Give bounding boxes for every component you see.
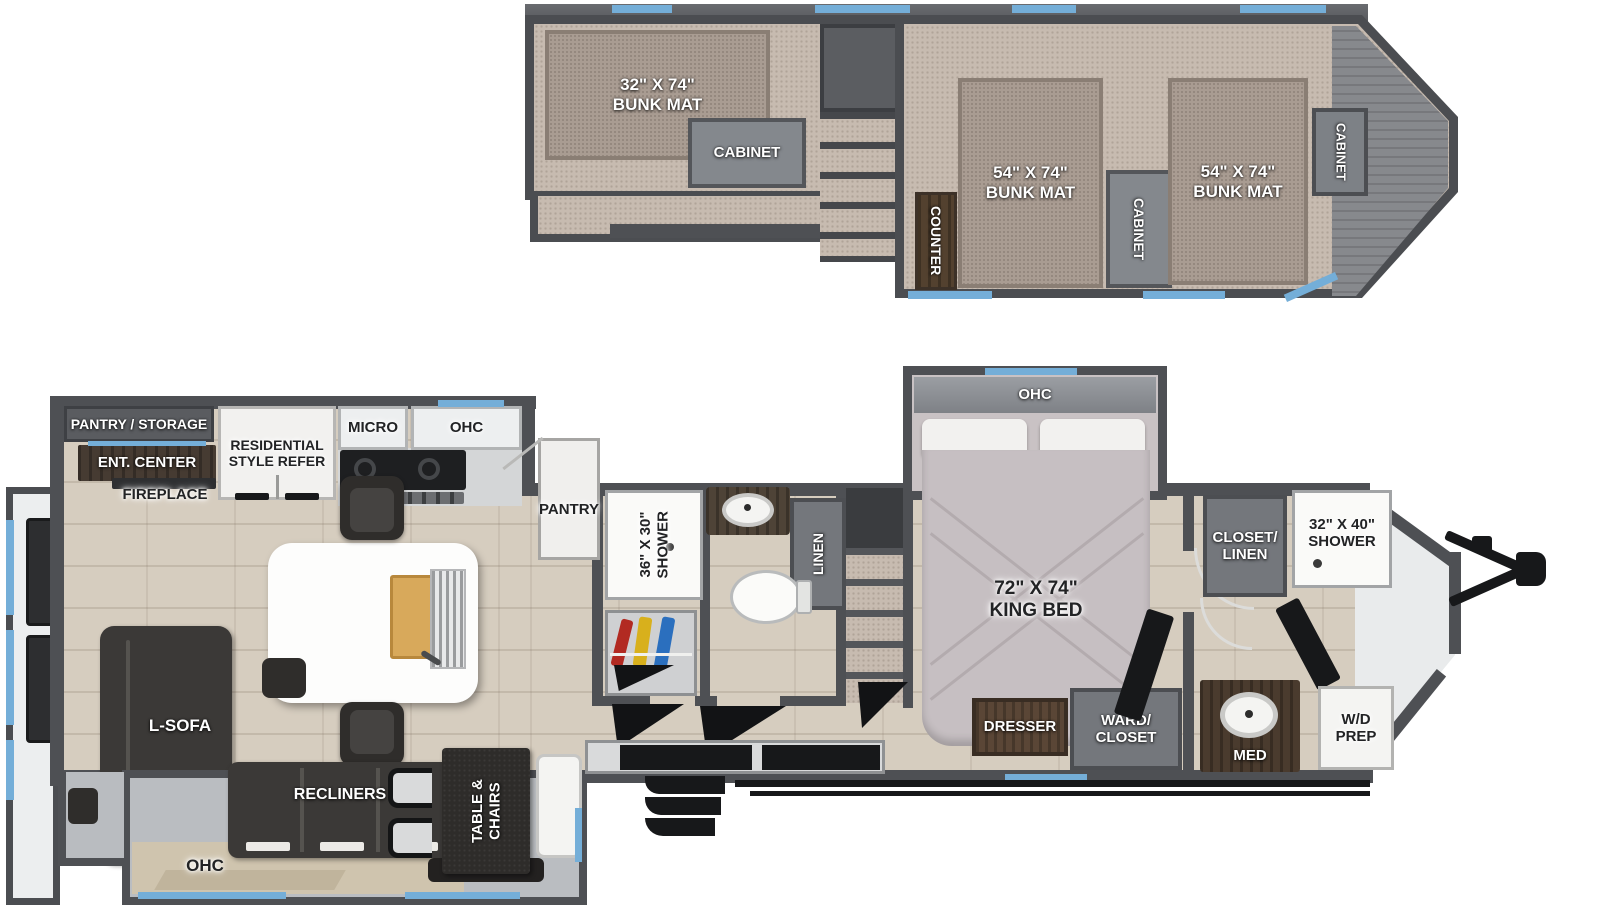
refer-label: RESIDENTIAL STYLE REFER (229, 437, 325, 469)
step (645, 797, 721, 815)
step (645, 818, 715, 836)
window-strip (405, 892, 520, 899)
end-table (68, 788, 98, 824)
upper-floor: 32" X 74" BUNK MAT CABINET COUNTER 54" X… (0, 0, 1600, 310)
stair-tread (820, 232, 908, 262)
toilet-tank (796, 580, 812, 614)
closet-linen: CLOSET/ LINEN (1203, 495, 1287, 597)
window-strip (815, 5, 910, 13)
main-floor: 36" X 30" SHOWER LINEN (0, 330, 1600, 905)
front-shower-label: 32" X 40" SHOWER (1295, 503, 1389, 563)
refer-handle (235, 493, 269, 500)
king-ohc-label: OHC (1018, 386, 1051, 403)
faucet-dot (1245, 710, 1253, 718)
rear-window-strip (6, 740, 14, 800)
loft-counter-label: COUNTER (928, 206, 944, 275)
l-sofa-label-wrap: L-SOFA (130, 706, 230, 746)
window-strip (1012, 5, 1076, 13)
chair-seat (350, 488, 394, 532)
ohc-kitchen-label: OHC (450, 419, 483, 436)
stair-tread (820, 202, 908, 232)
stair-tread (846, 579, 903, 610)
ohc-kitchen: OHC (411, 406, 522, 450)
pantry-storage-label: PANTRY / STORAGE (71, 416, 207, 432)
island-chair (340, 476, 404, 540)
closet-linen-label: CLOSET/ LINEN (1212, 529, 1277, 564)
hitch-coupler (1516, 552, 1546, 586)
stair-tread (820, 142, 908, 172)
ohc-living-label: OHC (186, 856, 224, 876)
toilet-bowl (730, 570, 802, 624)
stair-tread (846, 548, 903, 579)
dining-table-label: TABLE & CHAIRS (469, 779, 504, 843)
window-strip (575, 808, 582, 862)
loft-step-wall (610, 224, 848, 238)
rv-floorplan: 32" X 74" BUNK MAT CABINET COUNTER 54" X… (0, 0, 1600, 905)
wd-prep: W/D PREP (1318, 686, 1394, 770)
hitch-jack (1472, 536, 1492, 552)
window-strip (908, 291, 992, 299)
pantry-storage: PANTRY / STORAGE (64, 406, 214, 442)
stair-tread (820, 172, 908, 202)
loft-cabinet-mid-label: CABINET (1131, 198, 1147, 260)
bath-wall (903, 483, 913, 708)
refrigerator: RESIDENTIAL STYLE REFER (218, 406, 336, 500)
bunk-mat-left-label: 32" X 74" BUNK MAT (613, 75, 702, 114)
entry-mat (762, 745, 880, 770)
hanging-clothes-red (610, 618, 633, 667)
king-bed-label-wrap: 72" X 74" KING BED (936, 560, 1136, 640)
loft-cabinet-left: CABINET (688, 118, 806, 188)
stair-landing (820, 24, 908, 112)
hanging-clothes-blue (654, 616, 676, 669)
mid-wardrobe (605, 610, 697, 696)
bedroom-wall (1183, 487, 1194, 551)
stair-tread (846, 641, 903, 672)
med-label-wrap: MED (1200, 742, 1300, 770)
tv-strip (88, 441, 206, 446)
toilet (730, 568, 820, 630)
burner (418, 458, 440, 480)
sink-cover-grooves (430, 569, 466, 669)
loft-counter: COUNTER (915, 192, 957, 290)
dining-table: TABLE & CHAIRS (442, 748, 530, 874)
window-strip (138, 892, 286, 899)
frame-rail (735, 780, 1370, 787)
pantry-label: PANTRY (539, 501, 599, 518)
window-strip (1240, 5, 1326, 13)
fireplace-label: FIREPLACE (122, 486, 207, 503)
window-strip (985, 368, 1077, 375)
bedroom-wall (1183, 612, 1194, 782)
bunk-mat-right: 54" X 74" BUNK MAT (1168, 78, 1308, 285)
faucet-dot (744, 504, 751, 511)
island-chair (340, 702, 404, 766)
front-shower: 32" X 40" SHOWER (1292, 490, 1392, 588)
window-strip (438, 400, 504, 407)
refer-door-split (276, 475, 279, 499)
armrest-pad (246, 842, 290, 851)
loft-cabinet-mid: CABINET (1106, 170, 1172, 288)
rear-window-strip (6, 630, 14, 725)
loft-stairs (820, 24, 908, 262)
rear-window-strip (6, 520, 14, 615)
main-stairs (846, 488, 903, 703)
dresser-label: DRESSER (984, 718, 1057, 735)
dining-chair (388, 818, 432, 858)
bunk-mat-mid: 54" X 74" BUNK MAT (958, 78, 1103, 288)
ent-center: ENT. CENTER (78, 445, 216, 481)
recliners-label: RECLINERS (294, 786, 386, 804)
fireplace-label-wrap: FIREPLACE (105, 482, 225, 508)
entry-steps (645, 776, 725, 838)
loft-cabinet-front: CABINET (1312, 108, 1368, 196)
sink-counter-mid (706, 487, 790, 535)
vanity-med: MED (1200, 680, 1300, 772)
window-strip (1143, 291, 1225, 299)
loft-cabinet-left-label: CABINET (714, 144, 781, 161)
frame-rail (750, 791, 1370, 796)
bunk-mat-right-label: 54" X 74" BUNK MAT (1193, 162, 1282, 201)
l-sofa-label: L-SOFA (149, 716, 211, 736)
entry-mat (620, 745, 752, 770)
bath-wall (695, 696, 717, 706)
king-bed-label: 72" X 74" KING BED (990, 578, 1083, 622)
closet-shelf (614, 665, 674, 691)
king-ohc: OHC (914, 377, 1156, 413)
loft-cabinet-front-label: CABINET (1333, 123, 1348, 181)
bath-wall (780, 696, 846, 706)
armrest-pad (320, 842, 364, 851)
micro-cabinet: MICRO (338, 406, 408, 450)
stair-tread (846, 610, 903, 641)
stair-landing (846, 488, 903, 548)
micro-label: MICRO (348, 419, 398, 436)
pantry-label-wrap: PANTRY (528, 498, 610, 522)
stair-tread (820, 112, 908, 142)
window-strip (612, 5, 672, 13)
step (645, 776, 725, 794)
bunk-mat-mid-label: 54" X 74" BUNK MAT (986, 163, 1075, 202)
island-bin (262, 658, 306, 698)
wall (50, 396, 64, 786)
ent-center-label: ENT. CENTER (98, 454, 196, 471)
dresser: DRESSER (972, 698, 1068, 756)
closet-rod (610, 653, 692, 656)
hanging-clothes-yellow (633, 616, 653, 667)
med-label: MED (1233, 747, 1266, 764)
dining-chair (388, 768, 432, 808)
mid-shower-label: 36" X 30" SHOWER (637, 511, 672, 579)
mid-shower-label-wrap: 36" X 30" SHOWER (605, 485, 703, 605)
refer-handle (285, 493, 319, 500)
wd-prep-label: W/D PREP (1336, 711, 1377, 746)
chair-seat (350, 710, 394, 754)
